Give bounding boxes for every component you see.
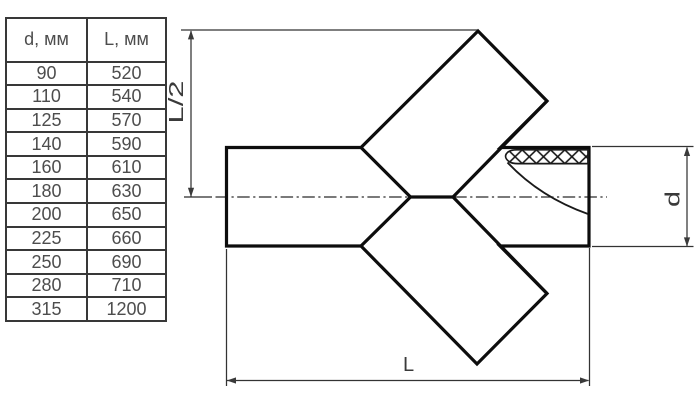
svg-text:L/2: L/2 [166,81,188,124]
svg-text:d: d [662,191,684,207]
svg-text:L: L [403,354,414,376]
